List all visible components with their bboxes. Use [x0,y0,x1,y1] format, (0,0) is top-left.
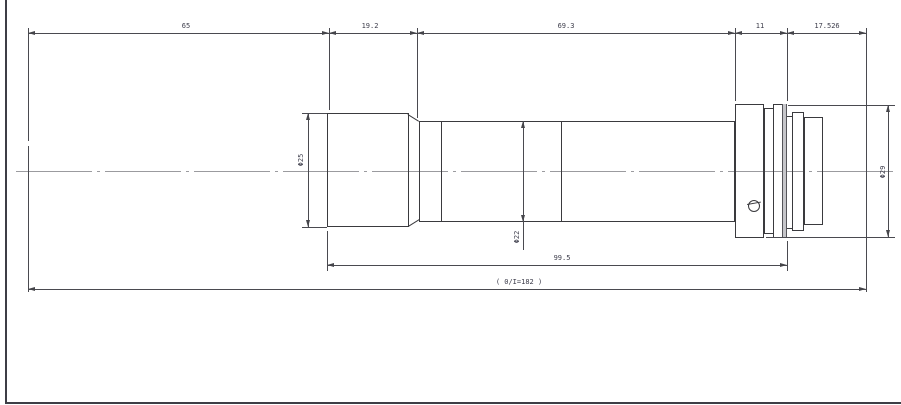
arrowhead [787,31,794,35]
arrowhead [327,263,334,267]
arrowhead [521,215,525,222]
mount-face-band [782,104,787,238]
object-plane-line [28,146,29,292]
length-dimension-line [327,265,787,266]
arrowhead [780,31,787,35]
dim-label-dia25: Φ25 [297,154,305,167]
arrowhead [780,263,787,267]
object-plane-line [28,28,29,141]
arrowhead [521,121,525,128]
arrowhead [28,31,35,35]
dia22-dimension-line [523,121,524,250]
arrowhead [417,31,424,35]
extension-line [766,237,895,238]
barrel-joint-line [561,121,562,222]
arrowhead [735,31,742,35]
drawing-canvas: 65 19.2 69.3 11 17.526 99.5 ( 0/I=182 ) … [0,0,901,405]
dia29-dimension-line [888,105,889,237]
dim-label-69-3: 69.3 [558,22,575,30]
extension-line [417,28,418,118]
arrowhead [886,230,890,237]
rear-barrel-outline [804,117,823,225]
dim-label-17-526: 17.526 [814,22,839,30]
extension-line [788,105,895,106]
arrowhead [329,31,336,35]
dim-label-dia29: Φ29 [879,166,887,179]
front-chamfer-bottom [408,219,420,227]
front-cell-outline [327,113,409,227]
extension-line [735,28,736,101]
dim-label-99-5: 99.5 [554,254,571,262]
dim-label-11: 11 [756,22,764,30]
extension-line [302,227,327,228]
arrowhead [306,220,310,227]
arrowhead [859,31,866,35]
dim-label-dia22: Φ22 [513,231,521,244]
image-plane-line [866,28,867,292]
arrowhead [859,287,866,291]
arrowhead [410,31,417,35]
dia25-dimension-line [308,113,309,227]
extension-line [329,28,330,110]
frame-bottom-border [5,402,901,404]
flange-outline [735,104,764,238]
arrowhead [886,105,890,112]
arrowhead [306,113,310,120]
thread-ring-outline [792,112,804,231]
dim-label-19-2: 19.2 [362,22,379,30]
dim-label-overall: ( 0/I=182 ) [496,278,542,286]
overall-dimension-line [28,289,866,290]
arrowhead [28,287,35,291]
dim-label-65: 65 [182,22,190,30]
extension-line [787,28,788,101]
barrel-joint-line [441,121,442,222]
barrel-outline [419,121,735,222]
arrowhead [322,31,329,35]
arrowhead [728,31,735,35]
frame-left-border [5,0,7,403]
extension-line [787,241,788,271]
